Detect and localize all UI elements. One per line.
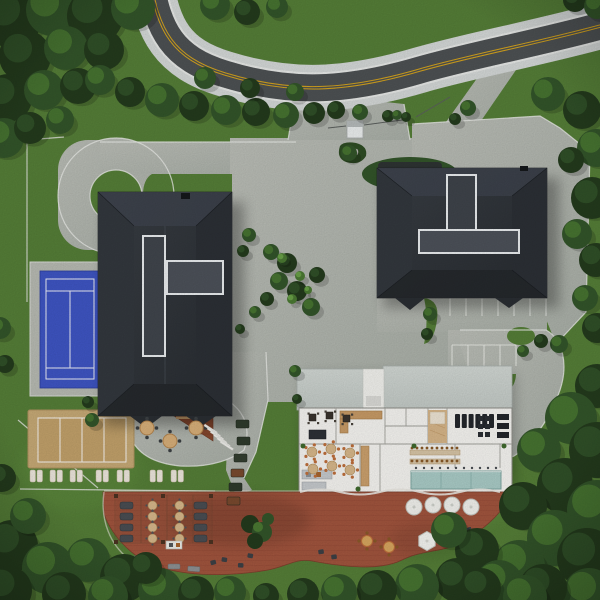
site-plan-rendering	[0, 0, 600, 600]
site-plan-rendering	[0, 0, 600, 600]
film-grain	[0, 0, 600, 600]
